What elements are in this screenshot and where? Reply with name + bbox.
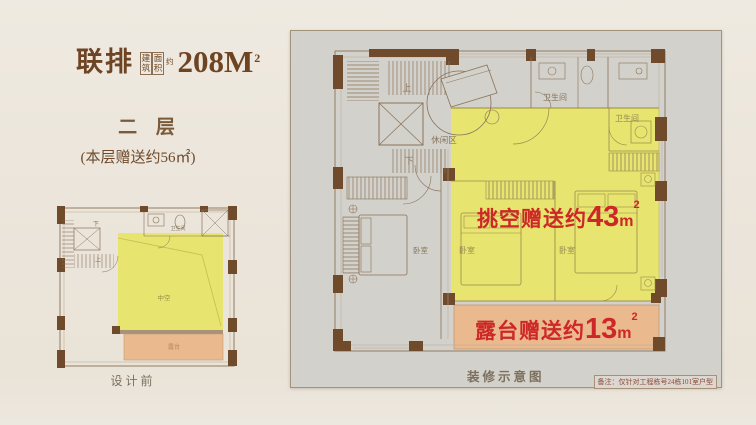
void-bonus-annotation: 挑空赠送约43m2 [477, 203, 640, 232]
bath1-label: 卫生间 [543, 92, 567, 102]
mini-up-label: 上 [95, 256, 101, 264]
up-label: 上 [402, 83, 411, 93]
void-bonus-unit: m [619, 213, 633, 230]
mini-floorplan: 卫生间 下 上 中空 露台 [52, 198, 242, 380]
void-bonus-text: 挑空赠送约 [477, 208, 587, 231]
terrace-bonus-number: 13 [585, 313, 617, 345]
area-value: 208M [178, 48, 254, 76]
leisure-label: 休闲区 [431, 135, 457, 145]
down-label: 下 [404, 156, 413, 166]
disclaimer-note: 备注：仅针对工程栋号24栋101室户型 [594, 375, 718, 389]
area-prefix-col2: 面积 [152, 52, 164, 75]
mini-terrace-label: 露台 [168, 343, 180, 351]
mini-void-area [118, 233, 223, 330]
area-prefix: 建筑 面积 约 [140, 52, 174, 75]
floor-label: 二 层 [60, 112, 240, 139]
floor-bonus-note: (本层赠送约56㎡) [48, 146, 228, 167]
bath2-label: 卫生间 [615, 113, 639, 123]
void-bonus-number: 43 [587, 201, 619, 233]
product-type-label: 联排 [76, 49, 134, 76]
mini-plan-caption: 设计前 [52, 372, 214, 389]
floorplan-poster: 联排 建筑 面积 约 208M 2 二 层 (本层赠送约56㎡) [0, 0, 756, 425]
bedroom2-label: 卧室 [559, 245, 575, 255]
terrace-bonus-text: 露台赠送约 [475, 320, 585, 343]
mini-bath-label: 卫生间 [170, 225, 185, 232]
plan-title: 联排 建筑 面积 约 208M 2 [76, 48, 260, 76]
area-value-sup: 2 [254, 52, 260, 64]
mini-void-label: 中空 [158, 293, 172, 302]
area-prefix-approx: 约 [166, 56, 174, 67]
void-bonus-sup: 2 [634, 199, 640, 211]
panel-caption: 装修示意图 [467, 366, 545, 385]
terrace-bonus-unit: m [617, 325, 631, 342]
area-prefix-col1: 建筑 [140, 52, 152, 75]
decorated-plan-panel: 上 下 休闲区 卫生间 卫生间 卧室 卧室 卧室 挑空赠送约43m2 露台赠送约… [290, 30, 722, 388]
terrace-bonus-sup: 2 [632, 311, 638, 323]
terrace-bonus-annotation: 露台赠送约13m2 [475, 315, 638, 344]
bedroom1-label: 卧室 [459, 245, 475, 255]
bedroom3-label: 卧室 [413, 245, 428, 255]
mini-down-label: 下 [93, 221, 99, 228]
